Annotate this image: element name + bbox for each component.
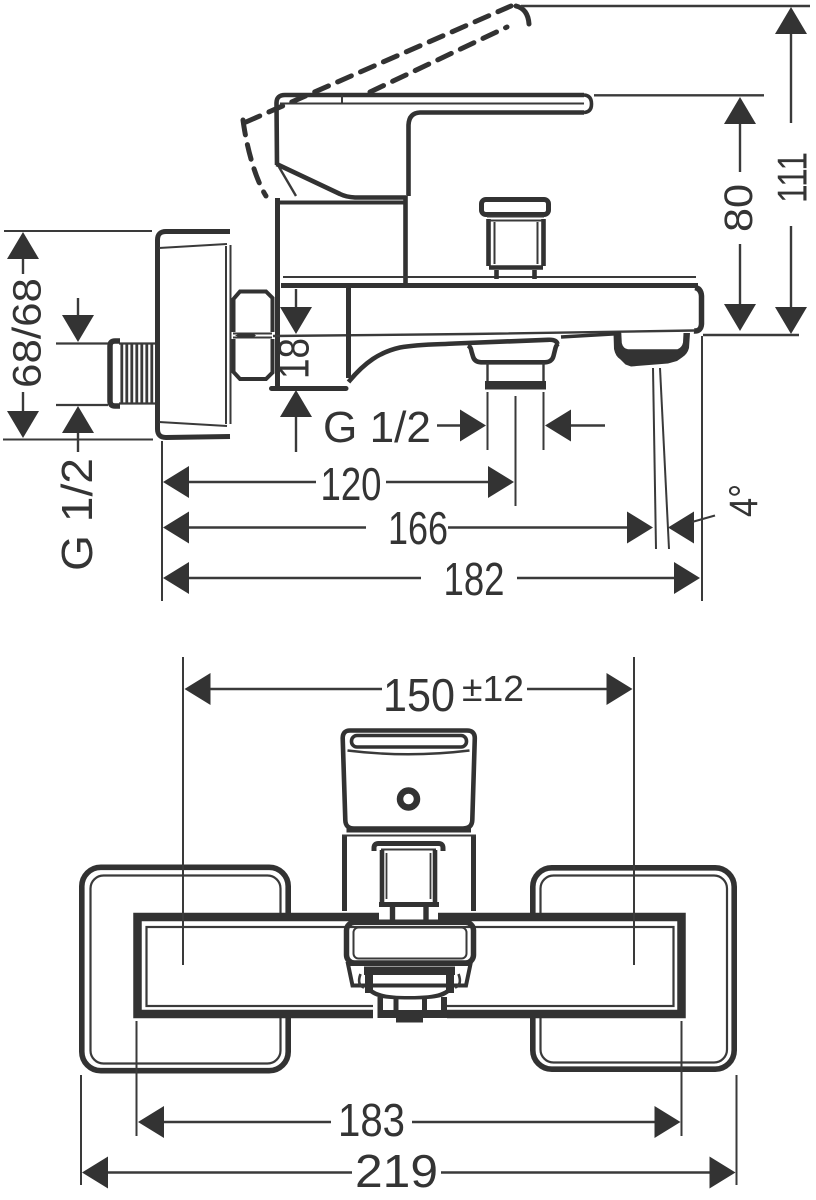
svg-text:150: 150	[383, 669, 455, 721]
svg-text:G 1/2: G 1/2	[53, 458, 102, 571]
svg-text:166: 166	[388, 502, 448, 554]
svg-text:120: 120	[321, 458, 382, 510]
svg-text:183: 183	[338, 1094, 405, 1146]
svg-text:±12: ±12	[462, 668, 524, 709]
svg-text:68/68: 68/68	[6, 278, 50, 388]
svg-text:G 1/2: G 1/2	[323, 403, 431, 452]
svg-text:18: 18	[270, 338, 319, 379]
svg-text:182: 182	[444, 553, 505, 605]
svg-text:111: 111	[769, 152, 816, 203]
svg-text:219: 219	[355, 1145, 438, 1197]
svg-text:4°: 4°	[722, 484, 766, 517]
svg-text:80: 80	[717, 184, 761, 232]
